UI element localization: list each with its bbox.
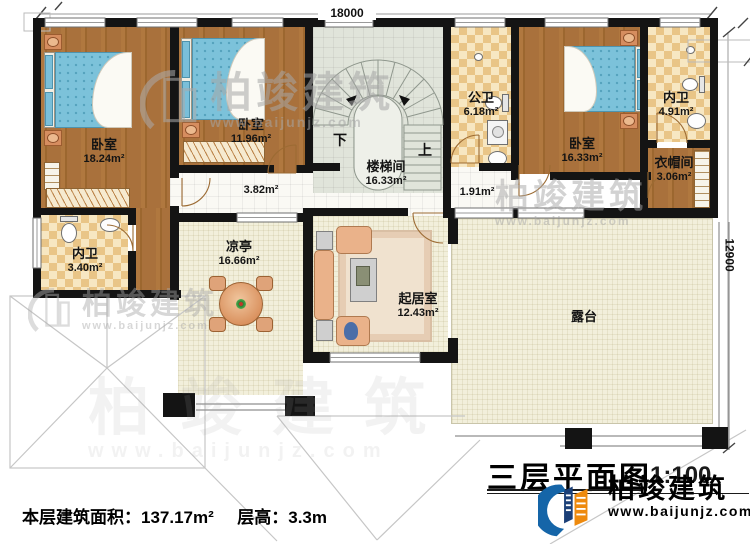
room-area: 3.40m²: [68, 262, 103, 275]
dimension-width: 18000: [318, 6, 376, 20]
washing-machine: [487, 120, 508, 145]
room-label-public-bath: 公卫 6.18m²: [464, 91, 499, 119]
nightstand: [44, 130, 62, 146]
person-figure: [344, 322, 358, 340]
room-area: 16.33m²: [562, 152, 603, 165]
wardrobe-bedroom1: [46, 188, 130, 208]
stairs-down-label: 下: [333, 130, 347, 150]
company-logo-brand: 柏竣建筑: [608, 476, 750, 503]
company-logo-icon: [538, 476, 600, 540]
room-area: 6.18m²: [464, 106, 499, 119]
cloakroom-shelving: [694, 150, 710, 208]
room-name: 卧室: [231, 118, 271, 133]
room-label-stairwell: 楼梯间 16.33m²: [366, 160, 407, 188]
toilet: [61, 223, 77, 243]
company-logo-url: www.baijunjz.com: [608, 503, 750, 519]
room-area: 16.66m²: [219, 255, 260, 268]
toilet-tank: [60, 216, 78, 222]
room-area: 12.43m²: [398, 307, 439, 320]
room-label-cloakroom: 衣帽间 3.06m²: [654, 156, 693, 184]
living-room-set: [314, 224, 434, 350]
stairs-up-label: 上: [418, 140, 432, 160]
nightstand: [44, 34, 62, 50]
room-label-bedroom1: 卧室 18.24m²: [84, 138, 125, 166]
sofa: [314, 250, 334, 320]
hall-area-1: 3.82m²: [244, 184, 279, 196]
room-name: 内卫: [68, 247, 103, 262]
faucet: [686, 46, 695, 54]
nightstand: [182, 122, 200, 138]
nightstand: [620, 30, 638, 46]
room-label-bedroom2: 卧室 11.96m²: [231, 118, 271, 146]
dresser: [44, 162, 60, 190]
watermark-url: www.baijunjz.com: [88, 440, 456, 463]
bedroom1-nook-floor: [136, 208, 170, 292]
toilet-tank: [699, 76, 705, 93]
room-name: 楼梯间: [366, 160, 407, 175]
pavilion-table-set: [209, 274, 273, 334]
floor-area-label: 本层建筑面积：: [22, 508, 141, 527]
company-logo: 柏竣建筑 www.baijunjz.com: [538, 476, 750, 540]
bed-bedroom1: [44, 52, 132, 128]
room-area: 18.24m²: [84, 153, 125, 166]
sink: [100, 218, 120, 232]
side-table: [316, 320, 333, 341]
floor-area-value: 137.17m²: [141, 508, 214, 527]
room-label-pavilion: 凉亭 16.66m²: [219, 240, 260, 268]
hall-area-2: 1.91m²: [460, 186, 495, 198]
room-name: 卧室: [562, 137, 603, 152]
room-label-terrace: 露台: [571, 310, 597, 325]
sink: [488, 151, 507, 166]
room-name: 衣帽间: [654, 156, 693, 171]
floor-height-value: 3.3m: [288, 508, 327, 527]
table-decor: [356, 266, 370, 286]
bed-bedroom3: [564, 46, 646, 112]
floor-area-line: 本层建筑面积：137.17m² 层高：3.3m: [22, 503, 327, 528]
nightstand: [620, 113, 638, 129]
room-area: 11.96m²: [231, 133, 271, 146]
room-name: 卧室: [84, 138, 125, 153]
room-name: 露台: [571, 310, 597, 325]
faucet: [474, 53, 483, 61]
room-label-living: 起居室 12.43m²: [398, 292, 439, 320]
room-label-ensuite-left: 内卫 3.40m²: [68, 247, 103, 275]
room-name: 起居室: [398, 292, 439, 307]
room-label-bedroom3: 卧室 16.33m²: [562, 137, 603, 165]
room-label-ensuite-right: 内卫 4.91m²: [659, 91, 694, 119]
floor-plan-canvas: 卧室 18.24m² 卧室 11.96m² 楼梯间 16.33m² 公卫 6.1…: [0, 0, 750, 544]
dimension-height: 12900: [723, 235, 737, 274]
room-area: 3.06m²: [654, 171, 693, 184]
toilet-tank: [502, 94, 509, 112]
room-area: 4.91m²: [659, 106, 694, 119]
floor-height-label: 层高：: [237, 508, 288, 527]
room-name: 凉亭: [219, 240, 260, 255]
bed-bedroom2: [181, 38, 265, 120]
watermark-logo-icon: [28, 284, 74, 338]
room-name: 内卫: [659, 91, 694, 106]
room-name: 公卫: [464, 91, 499, 106]
side-table: [316, 231, 333, 250]
room-area: 16.33m²: [366, 175, 407, 188]
sofa-seat: [336, 226, 372, 254]
table-plant: [236, 299, 246, 309]
